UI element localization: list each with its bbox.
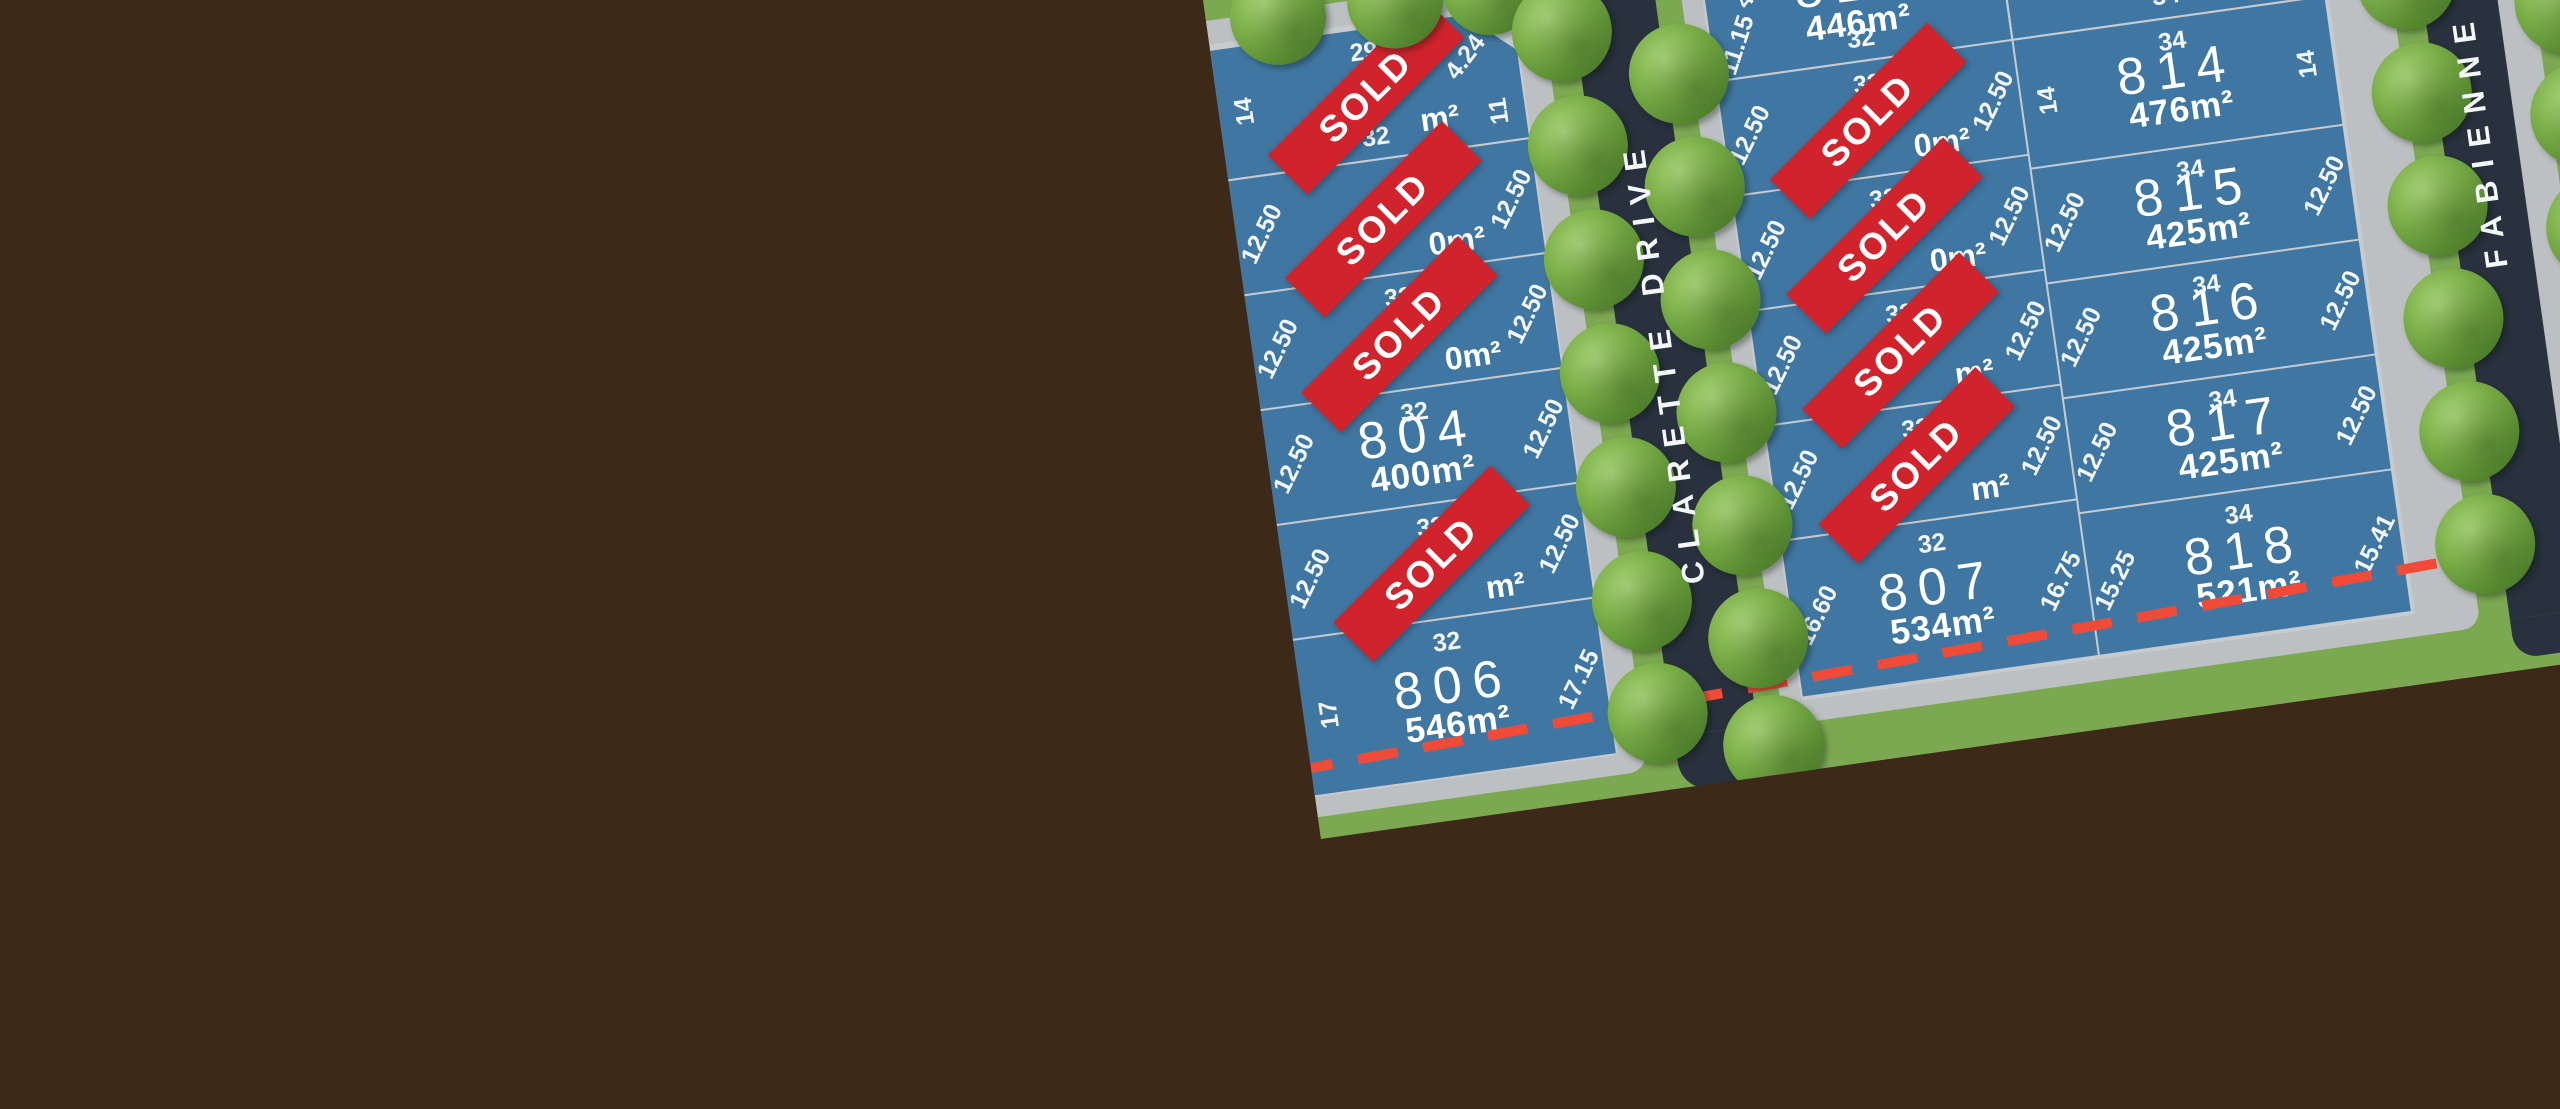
hidden-area-fragment: m²: [1484, 565, 1528, 607]
dimension-label: 34: [2156, 25, 2188, 58]
dimension-label: 32: [1431, 626, 1463, 659]
dimension-label: 34: [2175, 154, 2207, 187]
dimension-label: 14: [2291, 48, 2324, 80]
estate-masterplan: SIMMENTAL STREET CLARETTE DRIVE FABIENNE…: [0, 0, 2560, 1109]
dimension-label: 32: [1916, 528, 1948, 561]
dimension-label: 14: [2032, 85, 2065, 117]
dimension-label: 11: [1483, 96, 1515, 126]
dimension-label: 32: [1399, 396, 1431, 429]
dimension-label: 17: [1313, 699, 1346, 731]
dimension-label: 34: [2191, 269, 2223, 302]
hidden-area-fragment: m²: [1969, 466, 2013, 508]
dimension-label: 34: [2223, 499, 2255, 532]
masterplan-canvas: SIMMENTAL STREET CLARETTE DRIVE FABIENNE…: [1125, 0, 2560, 1109]
dimension-label: 14: [1229, 96, 1262, 128]
dimension-label: 32: [1845, 23, 1877, 56]
hidden-area-fragment: 0m²: [1442, 334, 1504, 379]
dimension-label: 34: [2207, 384, 2239, 417]
